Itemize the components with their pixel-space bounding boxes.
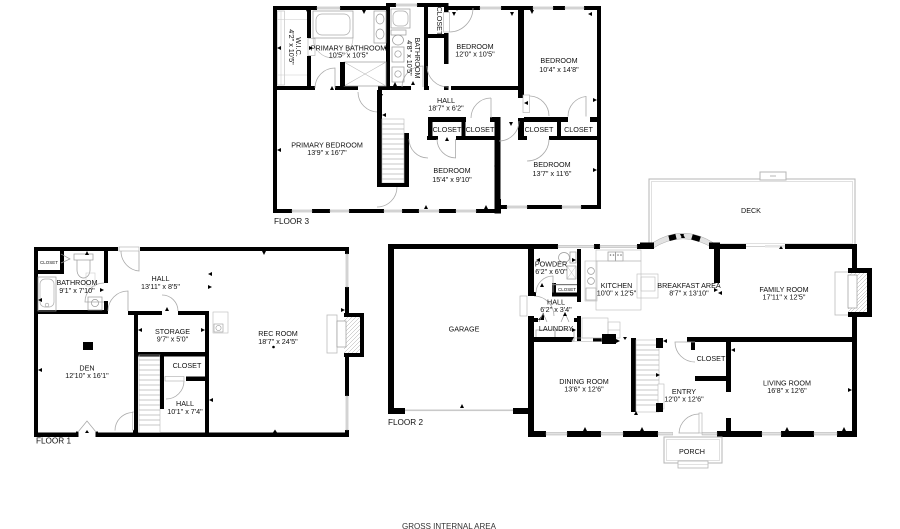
svg-text:FLOOR 3: FLOOR 3	[274, 217, 309, 226]
svg-text:9'1" x 7'10": 9'1" x 7'10"	[59, 286, 95, 295]
svg-text:13'7" x 11'6": 13'7" x 11'6"	[533, 169, 572, 178]
svg-text:BEDROOM: BEDROOM	[540, 56, 577, 65]
svg-text:CLOSET: CLOSET	[40, 260, 58, 265]
svg-text:4'2" x 10'5": 4'2" x 10'5"	[287, 29, 296, 65]
svg-text:DECK: DECK	[741, 206, 761, 215]
svg-text:13'9" x 16'7": 13'9" x 16'7"	[307, 148, 347, 157]
svg-text:10'4" x 14'8": 10'4" x 14'8"	[539, 65, 579, 74]
svg-text:9'7" x 5'0": 9'7" x 5'0"	[157, 335, 189, 344]
svg-text:10'0" x 12'5": 10'0" x 12'5"	[597, 289, 637, 298]
svg-text:LAUNDRY: LAUNDRY	[539, 324, 573, 333]
svg-text:10'5" x 10'5": 10'5" x 10'5"	[329, 51, 369, 60]
svg-text:CLOSET: CLOSET	[433, 125, 462, 134]
svg-text:FLOOR 2: FLOOR 2	[388, 418, 423, 427]
svg-text:CLOSET: CLOSET	[558, 287, 576, 292]
svg-text:6'2" x 6'0": 6'2" x 6'0"	[535, 267, 567, 276]
svg-text:16'8" x 12'6": 16'8" x 12'6"	[767, 386, 807, 395]
svg-text:CLOSET: CLOSET	[525, 125, 554, 134]
svg-text:GARAGE: GARAGE	[449, 325, 480, 334]
svg-text:6'2" x 3'4": 6'2" x 3'4"	[540, 305, 572, 314]
svg-text:FLOOR 1: FLOOR 1	[36, 437, 71, 446]
svg-text:CLOSET: CLOSET	[697, 354, 726, 363]
svg-text:8'7" x 13'10": 8'7" x 13'10"	[669, 289, 709, 298]
svg-text:GROSS INTERNAL AREA: GROSS INTERNAL AREA	[402, 522, 497, 529]
svg-text:CLOSET: CLOSET	[466, 125, 495, 134]
svg-text:CLOSET: CLOSET	[435, 7, 444, 36]
svg-text:CLOSET: CLOSET	[173, 361, 202, 370]
svg-text:12'0" x 10'5": 12'0" x 10'5"	[455, 50, 495, 59]
svg-text:PORCH: PORCH	[679, 447, 705, 456]
svg-text:10'1" x 7'4": 10'1" x 7'4"	[167, 407, 203, 416]
svg-text:18'7" x 24'5": 18'7" x 24'5"	[258, 337, 298, 346]
svg-text:12'0" x 12'6": 12'0" x 12'6"	[664, 395, 704, 404]
svg-text:12'10" x 16'1": 12'10" x 16'1"	[65, 371, 109, 380]
svg-text:13'6" x 12'6": 13'6" x 12'6"	[564, 385, 604, 394]
svg-text:BEDROOM: BEDROOM	[433, 166, 470, 175]
svg-text:15'4" x 9'10": 15'4" x 9'10"	[432, 175, 472, 184]
svg-text:CLOSET: CLOSET	[564, 125, 593, 134]
svg-text:BEDROOM: BEDROOM	[533, 160, 570, 169]
svg-text:18'7" x 6'2": 18'7" x 6'2"	[428, 104, 464, 113]
svg-text:17'11" x 12'5": 17'11" x 12'5"	[763, 293, 806, 302]
svg-text:4'8" x 10'5": 4'8" x 10'5"	[405, 40, 414, 76]
svg-text:13'11" x 8'5": 13'11" x 8'5"	[141, 282, 180, 291]
